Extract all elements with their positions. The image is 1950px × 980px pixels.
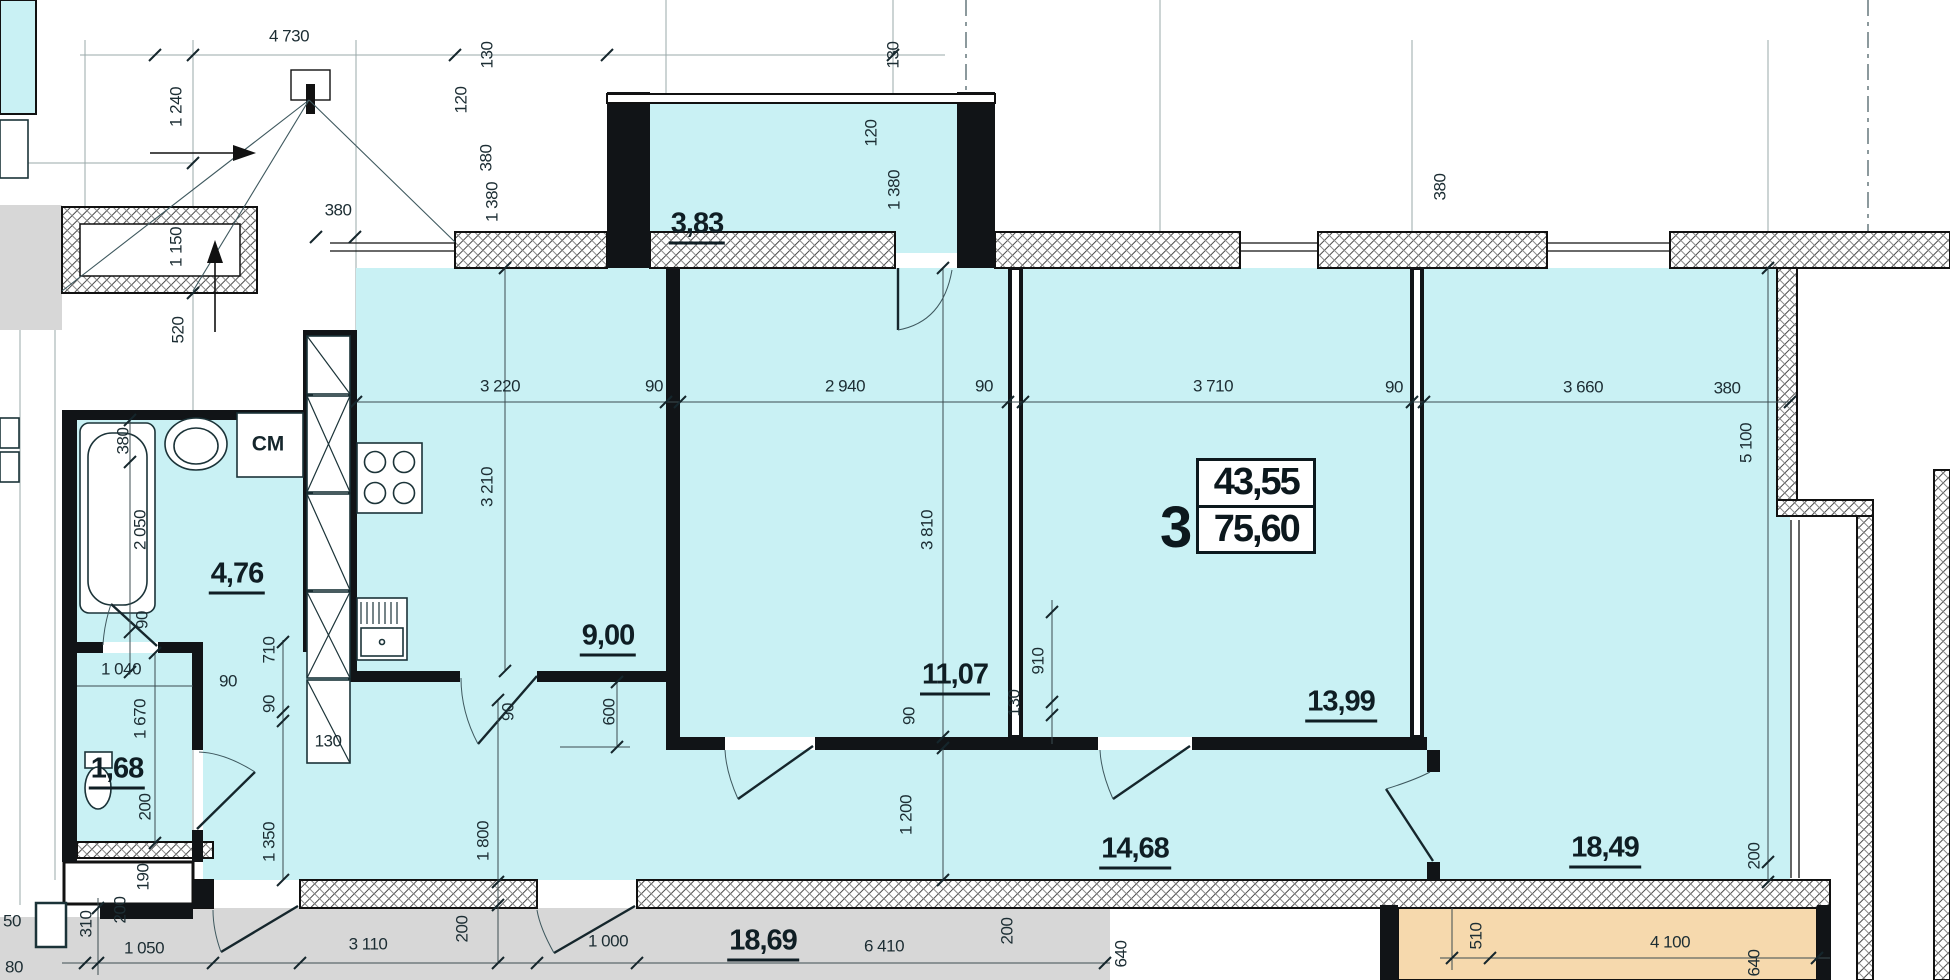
- dimension-label: 380: [478, 145, 495, 172]
- dimension-label: 80: [5, 959, 23, 976]
- room-area-label: 1,68: [89, 755, 145, 790]
- dimension-label: 90: [975, 378, 993, 395]
- dimension-label: 1 150: [168, 227, 185, 267]
- dimension-label: 200: [999, 918, 1016, 945]
- apartment-badge: 3 43,55 75,60: [1160, 455, 1316, 557]
- dimension-label: 90: [500, 703, 517, 721]
- dimension-label: 90: [901, 707, 918, 725]
- dimension-label: 520: [170, 317, 187, 344]
- floor-plan-page: 4 7301 2401 1503805201301203801 38013012…: [0, 0, 1950, 980]
- dimension-label: 90: [134, 611, 151, 629]
- dimension-label: 3 810: [919, 510, 936, 550]
- dimension-label: 3 660: [1563, 379, 1603, 396]
- dimension-label: 3 710: [1193, 378, 1233, 395]
- room-area-label: 3,83: [669, 210, 725, 245]
- dimension-label: 130: [315, 733, 342, 750]
- dimension-label: 130: [885, 42, 902, 69]
- dimension-label: 90: [645, 378, 663, 395]
- dimension-label: 310: [78, 911, 95, 938]
- dimension-label: 1 240: [168, 87, 185, 127]
- room-area-label: 13,99: [1305, 688, 1377, 723]
- dimension-label: 1 040: [101, 661, 141, 678]
- dimension-label: 190: [135, 864, 152, 891]
- living-area-value: 43,55: [1199, 461, 1313, 508]
- dimension-label: 200: [1746, 843, 1763, 870]
- dimension-label: 6 410: [864, 938, 904, 955]
- dimension-label: 120: [453, 87, 470, 114]
- dimension-label: 90: [219, 673, 237, 690]
- dimension-label: 130: [479, 42, 496, 69]
- dimension-label: 3 210: [479, 467, 496, 507]
- labels-layer: 4 7301 2401 1503805201301203801 38013012…: [0, 0, 1950, 980]
- dimension-label: 600: [601, 699, 618, 726]
- total-area-value: 75,60: [1199, 508, 1313, 552]
- dimension-label: 640: [1113, 941, 1130, 968]
- dimension-label: 3 220: [480, 378, 520, 395]
- dimension-label: 710: [261, 637, 278, 664]
- dimension-label: 120: [863, 120, 880, 147]
- apartment-areas-box: 43,55 75,60: [1196, 458, 1316, 554]
- apartment-number: 3: [1160, 499, 1192, 557]
- dimension-label: 3 110: [349, 936, 388, 953]
- dimension-label: 1 200: [898, 795, 915, 835]
- dimension-label: 1 380: [886, 170, 903, 210]
- dimension-label: 130: [1006, 690, 1023, 717]
- dimension-label: 200: [454, 916, 471, 943]
- dimension-label: 1 800: [475, 821, 492, 861]
- room-area-label: 18,69: [727, 927, 799, 962]
- room-area-label: 11,07: [920, 661, 990, 696]
- washing-machine-label: СМ: [252, 434, 284, 455]
- dimension-label: 380: [1432, 174, 1449, 201]
- dimension-label: 1 000: [588, 933, 628, 950]
- dimension-label: 1 350: [261, 822, 278, 862]
- dimension-label: 910: [1030, 648, 1047, 675]
- dimension-label: 200: [137, 794, 154, 821]
- dimension-label: 90: [1385, 379, 1403, 396]
- dimension-label: 5 100: [1738, 423, 1755, 463]
- dimension-label: 4 100: [1650, 934, 1690, 951]
- dimension-label: 2 050: [132, 510, 149, 550]
- room-area-label: 4,76: [209, 560, 265, 595]
- dimension-label: 90: [261, 695, 278, 713]
- dimension-label: 1 670: [132, 699, 149, 739]
- room-area-label: 18,49: [1569, 834, 1641, 869]
- dimension-label: 380: [325, 202, 352, 219]
- dimension-label: 380: [1714, 380, 1741, 397]
- dimension-label: 200: [112, 897, 129, 924]
- dimension-label: 2 940: [825, 378, 865, 395]
- room-area-label: 14,68: [1099, 835, 1171, 870]
- dimension-label: 50: [3, 913, 21, 930]
- dimension-label: 380: [115, 428, 132, 455]
- dimension-label: 640: [1746, 950, 1763, 977]
- dimension-label: 1 380: [484, 182, 501, 222]
- dimension-label: 1 050: [124, 940, 164, 957]
- dimension-label: 4 730: [269, 28, 309, 45]
- dimension-label: 510: [1468, 923, 1485, 950]
- room-area-label: 9,00: [580, 622, 636, 657]
